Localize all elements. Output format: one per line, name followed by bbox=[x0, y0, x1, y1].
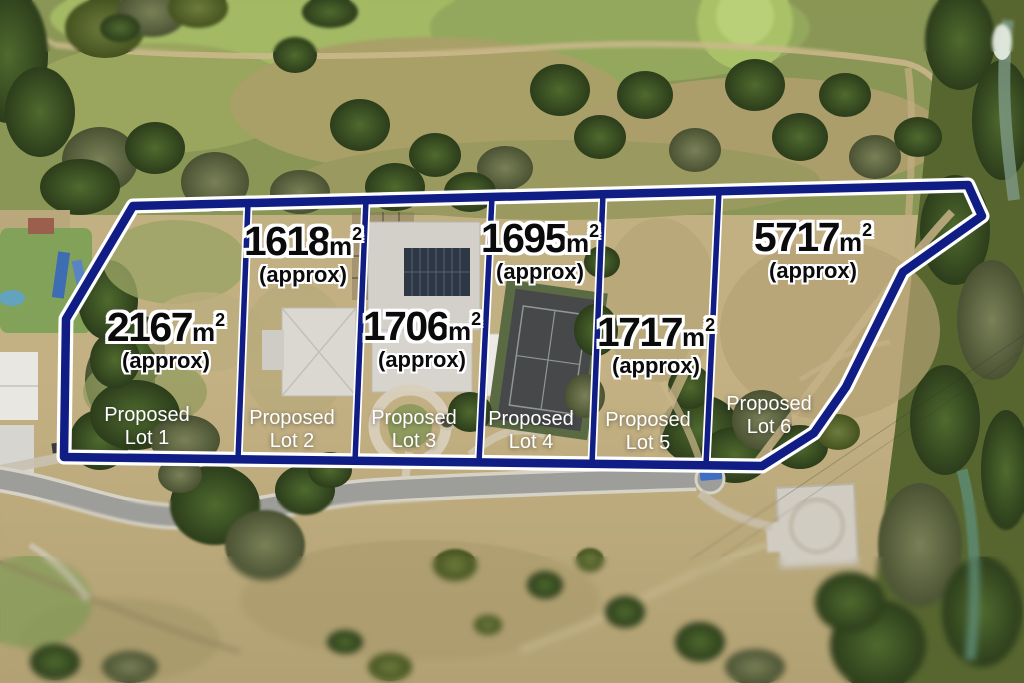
lot-6-area-label: 5717m2 (approx) bbox=[754, 217, 872, 283]
lot-1-approx-label: (approx) bbox=[107, 349, 225, 373]
lot-3-area-value: 1706 bbox=[363, 303, 448, 349]
lot-3-name-label: Proposed Lot 3 bbox=[371, 407, 457, 453]
lot-4-area-label: 1695m2 (approx) bbox=[481, 218, 599, 284]
aerial-subdivision-image: 2167m2 (approx) Proposed Lot 1 1618m2 (a… bbox=[0, 0, 1024, 683]
lot-3-approx-label: (approx) bbox=[363, 348, 481, 372]
lot-5-area-label: 1717m2 (approx) bbox=[597, 312, 715, 378]
lot-2-approx-label: (approx) bbox=[244, 263, 362, 287]
lot-6-area-value: 5717 bbox=[754, 214, 839, 260]
lot-3-area-label: 1706m2 (approx) bbox=[363, 306, 481, 372]
lot-5-area-value: 1717 bbox=[597, 309, 682, 355]
lot-1-area-label: 2167m2 (approx) bbox=[107, 307, 225, 373]
lot-1-area-value: 2167 bbox=[107, 304, 192, 350]
lot-4-area-value: 1695 bbox=[481, 215, 566, 261]
lot-4-approx-label: (approx) bbox=[481, 260, 599, 284]
lot-4-name-label: Proposed Lot 4 bbox=[488, 408, 574, 454]
lot-5-name-label: Proposed Lot 5 bbox=[605, 409, 691, 455]
lot-2-area-label: 1618m2 (approx) bbox=[244, 221, 362, 287]
lot-1-name-label: Proposed Lot 1 bbox=[104, 404, 190, 450]
lot-2-name-label: Proposed Lot 2 bbox=[249, 407, 335, 453]
lot-6-approx-label: (approx) bbox=[754, 259, 872, 283]
lot-2-area-value: 1618 bbox=[244, 218, 329, 264]
lot-6-name-label: Proposed Lot 6 bbox=[726, 393, 812, 439]
lot-5-approx-label: (approx) bbox=[597, 354, 715, 378]
